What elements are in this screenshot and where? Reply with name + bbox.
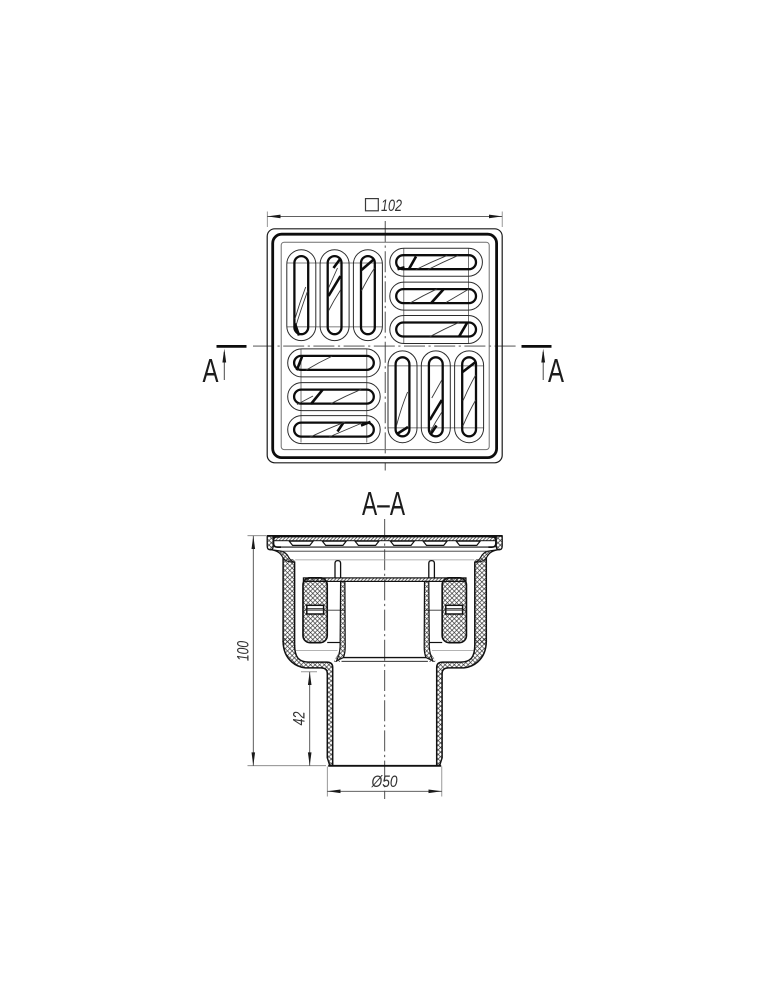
svg-text:A: A: [203, 352, 219, 389]
svg-text:42: 42: [290, 711, 309, 725]
svg-text:102: 102: [381, 196, 402, 215]
svg-text:A: A: [548, 352, 564, 389]
svg-text:A–A: A–A: [362, 485, 405, 522]
svg-text:Ø50: Ø50: [371, 772, 398, 791]
svg-text:100: 100: [234, 641, 253, 661]
